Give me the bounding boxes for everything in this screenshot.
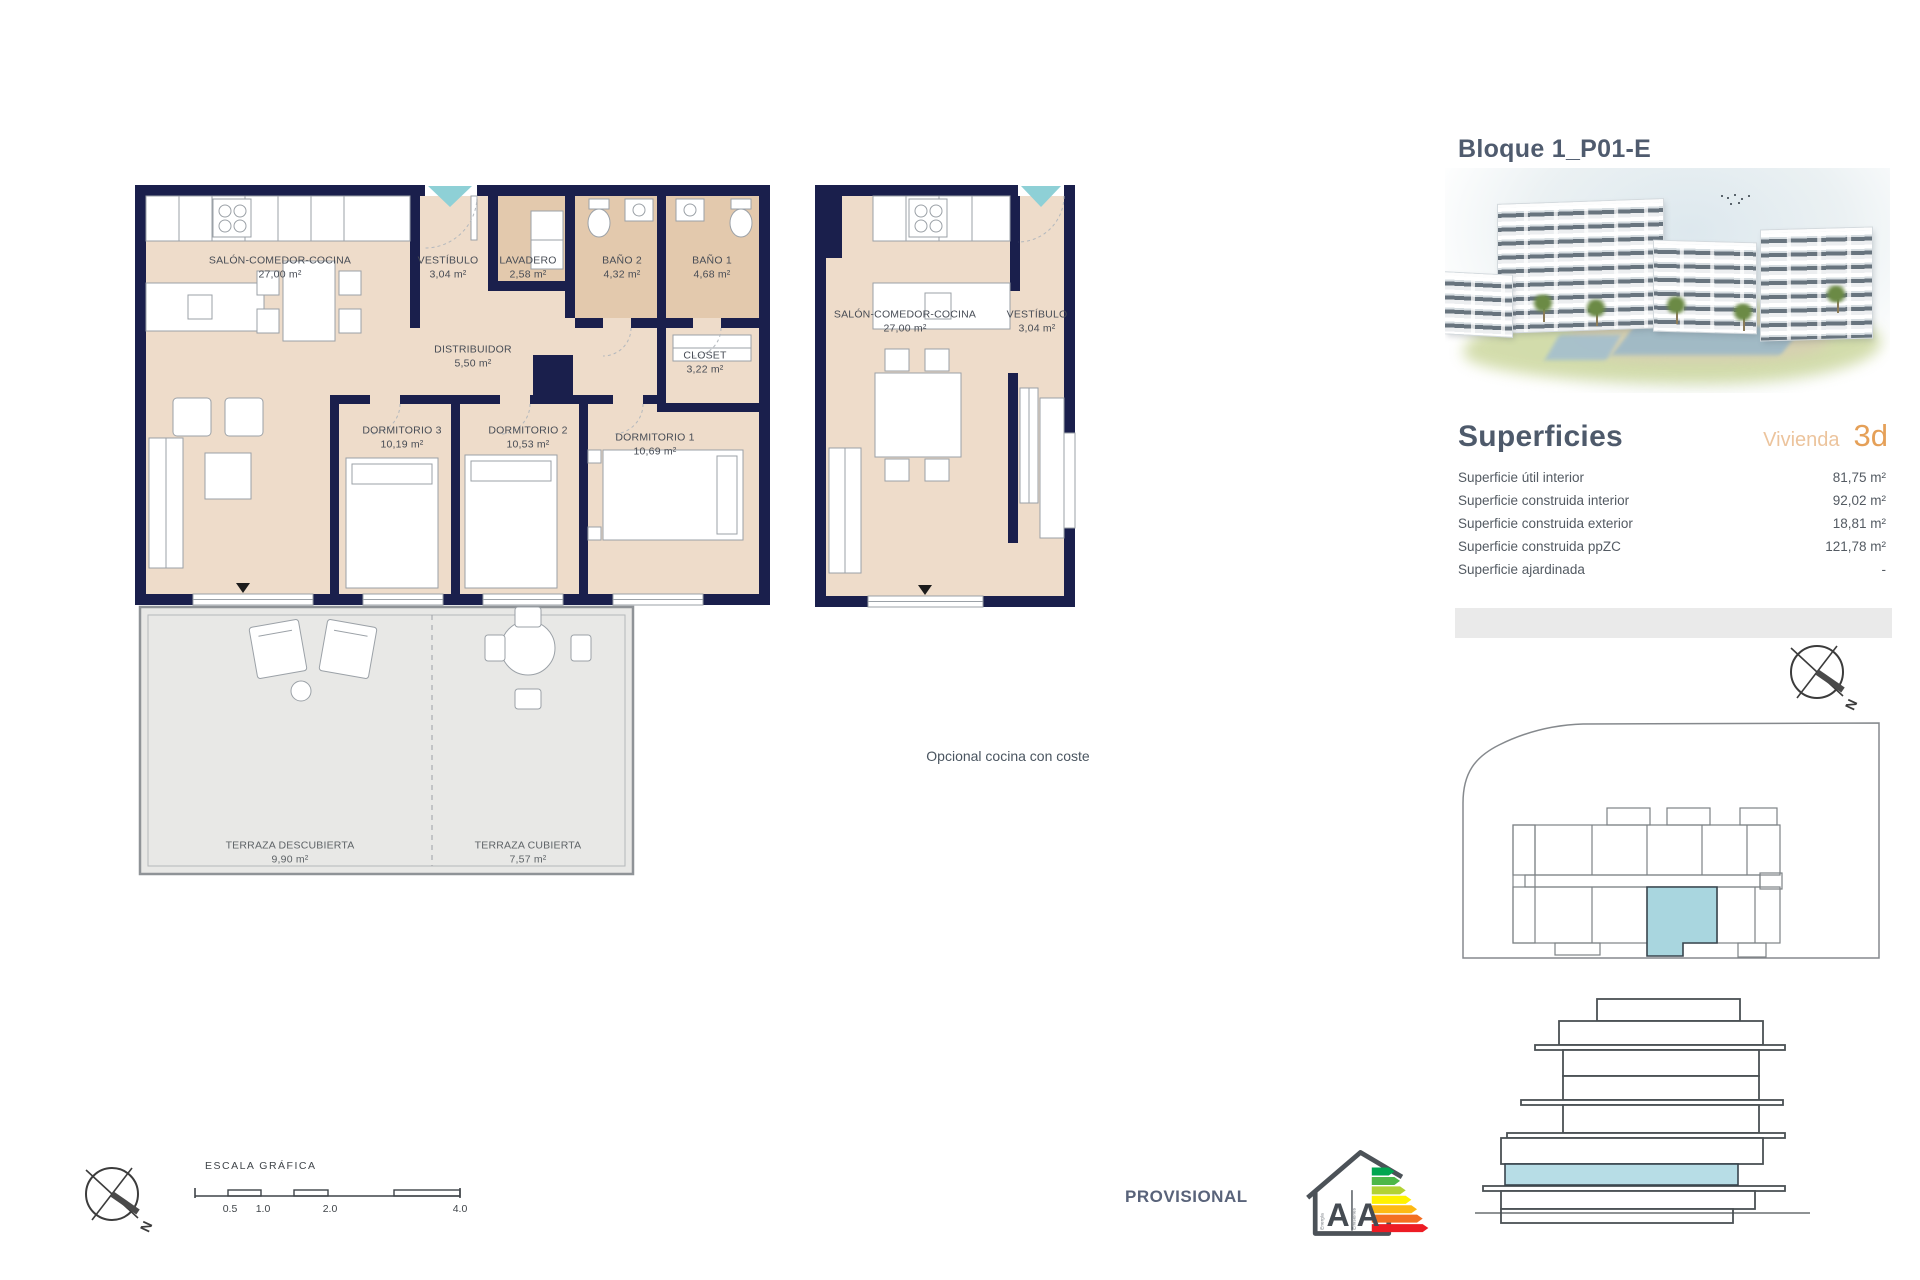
superficies-heading: Superficies xyxy=(1458,420,1623,454)
apartment-walls xyxy=(135,183,770,605)
building-low-wing xyxy=(1445,272,1512,336)
highlighted-floor xyxy=(1505,1164,1738,1185)
table-row: Superficie construida exterior18,81 m² xyxy=(1458,512,1886,535)
building-right xyxy=(1761,227,1872,340)
svg-text:A: A xyxy=(1327,1197,1350,1233)
palm-tree-icon xyxy=(1530,294,1556,312)
svg-text:N: N xyxy=(137,1219,156,1234)
compass-icon: N xyxy=(1785,640,1865,712)
energy-rating-icon: A A Energía Emisiones xyxy=(1302,1140,1434,1245)
superficies-header: Superficies Vivienda 3d xyxy=(1458,418,1888,454)
table-row: Superficie útil interior81,75 m² xyxy=(1458,466,1886,489)
palm-tree-icon xyxy=(1730,303,1756,321)
svg-text:1.0: 1.0 xyxy=(256,1203,271,1215)
site-key-plan xyxy=(1455,715,1890,965)
vivienda-code: 3d xyxy=(1854,418,1888,454)
vivienda-label: Vivienda xyxy=(1763,429,1839,452)
svg-text:2.0: 2.0 xyxy=(323,1203,338,1215)
table-row: Superficie construida ppZC121,78 m² xyxy=(1458,535,1886,558)
plan-sheet: SALÓN-COMEDOR-COCINA27,00 m² VESTÍBULO3,… xyxy=(0,0,1920,1280)
terrace xyxy=(140,607,633,874)
palm-tree-icon xyxy=(1823,285,1849,303)
hob-icon xyxy=(213,199,251,237)
building-render-illustration xyxy=(1445,168,1890,393)
floor-plan-main-drawing xyxy=(133,183,773,883)
floor-plan-optional-drawing xyxy=(813,183,1083,613)
hob-icon xyxy=(909,199,947,237)
svg-text:A: A xyxy=(1357,1197,1380,1233)
svg-text:4.0: 4.0 xyxy=(453,1203,468,1215)
palm-tree-icon xyxy=(1583,299,1609,317)
birds xyxy=(1721,195,1723,197)
building-left xyxy=(1498,199,1663,333)
svg-text:0.5: 0.5 xyxy=(223,1203,238,1215)
optional-plan-caption: Opcional cocina con coste xyxy=(926,748,1089,764)
svg-text:Emisiones: Emisiones xyxy=(1352,1207,1357,1229)
building-elevation xyxy=(1475,995,1895,1240)
table-row: Superficie ajardinada- xyxy=(1458,558,1886,581)
scale-bar: 0.5 1.0 2.0 4.0 xyxy=(160,1158,480,1218)
superficies-table: Superficie útil interior81,75 m² Superfi… xyxy=(1458,466,1886,581)
table-row: Superficie construida interior92,02 m² xyxy=(1458,489,1886,512)
compass-icon: N xyxy=(80,1162,160,1234)
svg-text:Energía: Energía xyxy=(1320,1213,1325,1230)
page-title: Bloque 1_P01-E xyxy=(1458,135,1651,164)
palm-tree-icon xyxy=(1663,296,1689,314)
provisional-watermark: PROVISIONAL xyxy=(1125,1187,1248,1207)
svg-text:N: N xyxy=(1842,697,1861,712)
divider-bar xyxy=(1455,608,1892,638)
